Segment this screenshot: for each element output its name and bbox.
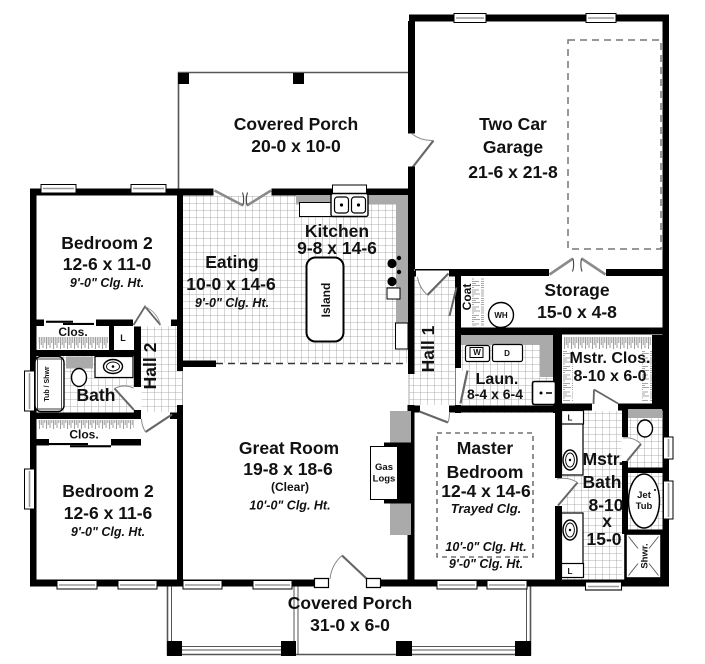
svg-text:Covered Porch: Covered Porch <box>234 114 358 134</box>
svg-text:Jet: Jet <box>637 490 652 501</box>
svg-text:L: L <box>568 414 573 423</box>
svg-text:Clos.: Clos. <box>69 428 98 442</box>
svg-text:(Clear): (Clear) <box>271 480 309 494</box>
svg-text:Bedroom: Bedroom <box>447 462 524 482</box>
svg-text:20-0 x 10-0: 20-0 x 10-0 <box>251 136 341 156</box>
svg-text:Hall 1: Hall 1 <box>418 325 438 372</box>
svg-text:Hall 2: Hall 2 <box>140 342 160 389</box>
svg-text:10'-0" Clg. Ht.: 10'-0" Clg. Ht. <box>445 540 526 554</box>
svg-text:Bedroom 2: Bedroom 2 <box>62 481 154 501</box>
svg-text:12-6 x 11-6: 12-6 x 11-6 <box>64 503 153 523</box>
svg-text:8-4 x 6-4: 8-4 x 6-4 <box>467 386 523 402</box>
svg-text:9'-0" Clg. Ht.: 9'-0" Clg. Ht. <box>195 296 269 310</box>
svg-text:Gas: Gas <box>375 462 393 473</box>
svg-text:Bath: Bath <box>583 472 622 492</box>
svg-text:D: D <box>504 349 510 358</box>
svg-text:WH: WH <box>494 311 508 320</box>
svg-text:Eating: Eating <box>205 252 258 272</box>
svg-text:10-0 x 14-6: 10-0 x 14-6 <box>186 274 276 294</box>
svg-text:9'-0" Clg. Ht.: 9'-0" Clg. Ht. <box>71 525 145 539</box>
svg-text:Covered Porch: Covered Porch <box>288 593 412 613</box>
svg-text:Island: Island <box>319 283 333 318</box>
svg-text:Bedroom 2: Bedroom 2 <box>61 233 153 253</box>
svg-text:Tub / Shwr: Tub / Shwr <box>44 366 51 402</box>
svg-text:10'-0" Clg. Ht.: 10'-0" Clg. Ht. <box>249 499 330 513</box>
svg-text:Bath: Bath <box>77 385 116 405</box>
svg-text:Shwr.: Shwr. <box>640 543 651 568</box>
svg-text:Logs: Logs <box>373 474 396 485</box>
svg-text:19-8 x 18-6: 19-8 x 18-6 <box>243 459 333 479</box>
svg-text:Garage: Garage <box>483 137 544 157</box>
svg-text:Coat: Coat <box>460 284 474 311</box>
svg-text:Trayed Clg.: Trayed Clg. <box>451 501 522 516</box>
svg-text:21-6 x 21-8: 21-6 x 21-8 <box>468 162 558 182</box>
svg-text:15-0: 15-0 <box>586 529 621 549</box>
svg-text:9'-0" Clg. Ht.: 9'-0" Clg. Ht. <box>70 276 144 290</box>
svg-text:Great Room: Great Room <box>239 438 339 458</box>
svg-text:9-8 x 14-6: 9-8 x 14-6 <box>297 238 377 258</box>
svg-text:L: L <box>120 333 126 343</box>
svg-text:Two Car: Two Car <box>479 114 547 134</box>
svg-text:Clos.: Clos. <box>58 325 87 339</box>
svg-text:8-10 x 6-0: 8-10 x 6-0 <box>574 368 647 385</box>
svg-text:Mstr.: Mstr. <box>583 449 624 469</box>
svg-text:W: W <box>473 348 481 357</box>
svg-text:12-4 x 14-6: 12-4 x 14-6 <box>441 481 531 501</box>
svg-text:L: L <box>568 567 573 576</box>
svg-text:Master: Master <box>457 438 514 458</box>
svg-text:31-0 x 6-0: 31-0 x 6-0 <box>310 615 390 635</box>
svg-text:12-6 x 11-0: 12-6 x 11-0 <box>63 254 152 274</box>
svg-text:Tub: Tub <box>636 501 653 512</box>
svg-text:Mstr. Clos.: Mstr. Clos. <box>570 350 651 367</box>
svg-text:15-0 x 4-8: 15-0 x 4-8 <box>537 302 617 322</box>
svg-text:9'-0" Clg. Ht.: 9'-0" Clg. Ht. <box>449 557 523 571</box>
svg-text:Storage: Storage <box>544 280 609 300</box>
svg-text:x: x <box>602 511 612 531</box>
